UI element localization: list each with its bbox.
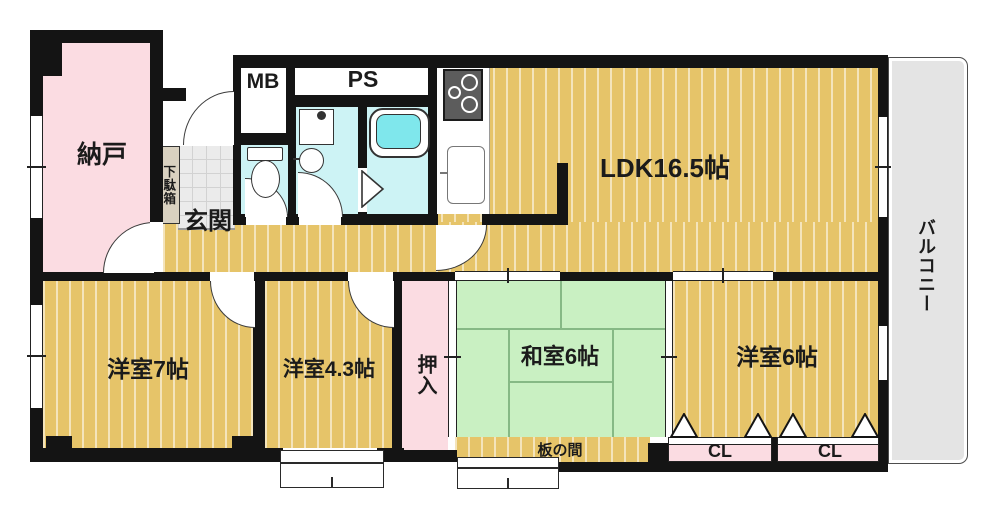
toilet-bowl-icon (251, 160, 280, 198)
wall (288, 98, 436, 107)
western6-label: 洋室6帖 (697, 340, 857, 374)
kitchen-sink-icon (447, 146, 485, 204)
door-opening (348, 272, 393, 281)
wall (482, 214, 568, 225)
bay-window-line (458, 467, 558, 469)
balcony-label: バルコニー (910, 205, 942, 325)
sliding-door-tick (507, 268, 509, 283)
bay-window-tick (331, 477, 333, 487)
getabako-label: 下駄箱 (158, 150, 178, 220)
toilet-icon (247, 147, 283, 161)
shower-door-icon (361, 170, 385, 208)
sliding-door (448, 281, 457, 437)
hallway-floor (163, 222, 882, 272)
wall (545, 462, 655, 472)
sliding-door-tick (661, 356, 677, 358)
wall (253, 448, 283, 462)
door-opening (210, 272, 254, 281)
bay-window-tick (507, 478, 509, 488)
sliding-door-tick (722, 268, 724, 283)
bay-window-line (281, 462, 383, 464)
window-tick (875, 166, 891, 168)
closet1-label: CL (680, 441, 760, 461)
wall (233, 136, 295, 145)
wall (395, 450, 457, 462)
window-tick (27, 166, 46, 168)
bay-window (457, 457, 559, 489)
door-opening (246, 214, 286, 225)
ps-label: PS (290, 62, 436, 96)
stove-icon (443, 69, 483, 121)
tatami-line (508, 381, 614, 383)
western7-label: 洋室7帖 (68, 352, 228, 386)
washing-machine-dot-icon (317, 111, 326, 120)
kitchen-tap-icon (440, 172, 448, 174)
mb-label: MB (235, 66, 291, 96)
closet2-label: CL (790, 441, 870, 461)
folding-door-icon (670, 413, 698, 438)
floor-plan: 納戸 下駄箱 玄関 MB PS LDK16.5帖 バルコニー 洋室7帖 洋室4.… (0, 0, 1000, 513)
stove-burner-icon (461, 74, 478, 91)
folding-door-icon (744, 413, 772, 438)
wall (288, 100, 296, 220)
stove-burner-icon (448, 86, 461, 99)
wall (46, 436, 72, 448)
stove-burner-icon (461, 96, 478, 113)
tatami-line (560, 281, 562, 330)
door-opening (150, 222, 163, 272)
window-tick (27, 355, 46, 357)
oshiire-label: 押入 (408, 330, 442, 420)
washbasin-icon (299, 148, 324, 173)
washbasin-tap-icon (293, 158, 300, 160)
ldk-label: LDK16.5帖 (560, 148, 770, 188)
itanoma-label: 板の間 (510, 440, 610, 460)
bay-window (280, 450, 384, 488)
wall (30, 448, 260, 462)
washitsu-label: 和室6帖 (480, 340, 640, 374)
nando-label: 納戸 (47, 138, 157, 172)
bathtub-water-icon (376, 114, 421, 149)
sliding-door-tick (444, 356, 461, 358)
wall (42, 42, 62, 76)
wall (650, 462, 888, 472)
door-opening (299, 214, 341, 225)
genkan-label: 玄関 (178, 205, 238, 239)
folding-door-icon (779, 413, 807, 438)
western43-label: 洋室4.3帖 (262, 352, 396, 386)
folding-door-icon (851, 413, 879, 438)
window (878, 326, 888, 380)
